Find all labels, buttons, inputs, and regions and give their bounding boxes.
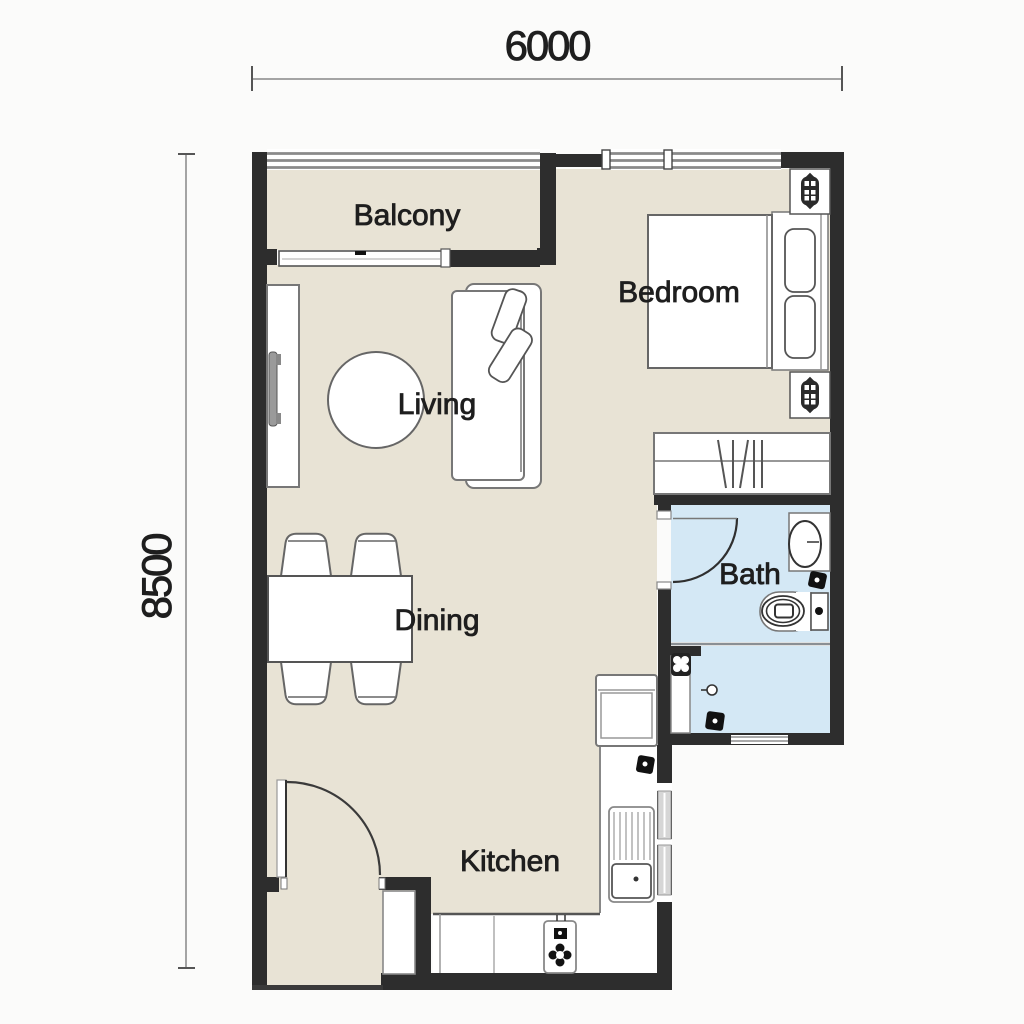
svg-text:Living: Living [398, 388, 476, 421]
svg-text:Dining: Dining [394, 604, 479, 637]
svg-text:Bedroom: Bedroom [618, 276, 740, 309]
svg-text:8500: 8500 [133, 534, 180, 619]
svg-text:Kitchen: Kitchen [460, 845, 560, 878]
svg-text:6000: 6000 [505, 22, 590, 69]
svg-text:Balcony: Balcony [354, 199, 461, 232]
svg-text:Bath: Bath [719, 558, 781, 591]
